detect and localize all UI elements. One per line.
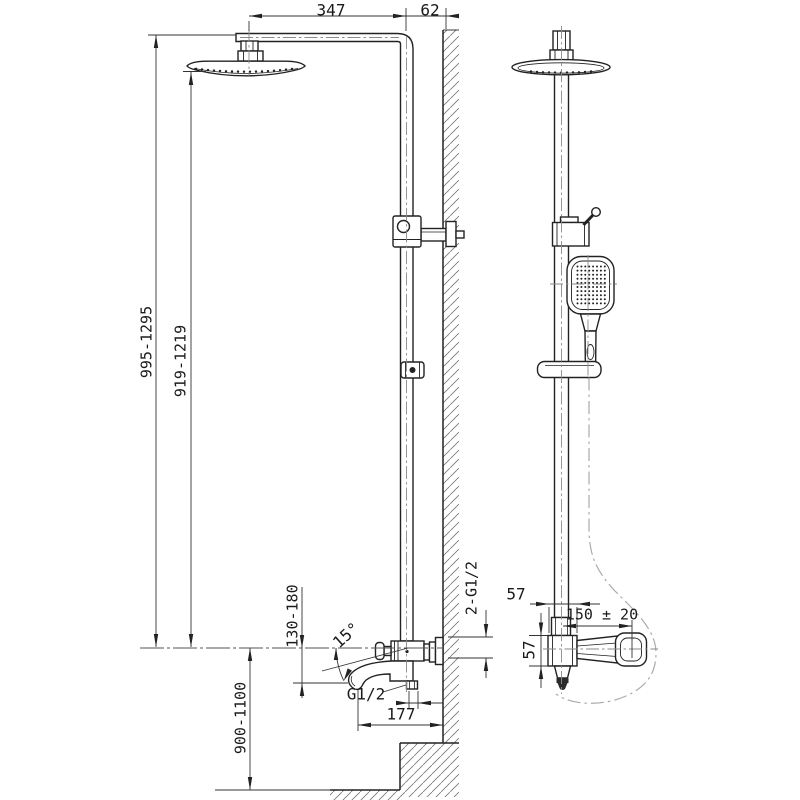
mixer-knob (376, 643, 385, 660)
g12-leader (383, 685, 406, 692)
mixer-handle-shaft (577, 636, 617, 663)
dim-inlet-spacing: 150 ± 20 (566, 605, 638, 623)
rain-head-side (187, 61, 305, 76)
dim-inlet-thread: 2-G1/2 (462, 561, 480, 615)
hand-shower-neck (581, 314, 601, 331)
dim-head-height: 919-1219 (171, 325, 189, 397)
angle-arc (336, 648, 344, 681)
shower-arm-and-riser (236, 34, 413, 642)
dim-body-width: 57 (506, 585, 525, 604)
shower-system-diagram: 347 62 995-1295 919-1219 130-180 900-110… (0, 0, 800, 800)
dim-arm-reach: 347 (317, 1, 346, 20)
front-view (512, 31, 647, 690)
hand-shower-holder (538, 362, 602, 378)
dim-mount-height: 900-1100 (231, 682, 249, 754)
hand-shower (567, 257, 614, 378)
centerlines (140, 26, 658, 694)
dim-spout-reach: 177 (387, 705, 416, 724)
wall-union-flange (436, 638, 444, 665)
dim-spout-thread: G1/2 (347, 685, 386, 704)
side-view (187, 34, 464, 690)
dim-wall-offset: 62 (420, 1, 439, 20)
hose-outlet-cone (555, 666, 571, 678)
hose-outlet-nozzle (407, 681, 418, 689)
dim-overall-height: 995-1295 (137, 306, 155, 378)
slide-clamp (401, 362, 424, 378)
dim-body-height: 57 (520, 640, 539, 659)
dim-spout-angle: 15° (329, 618, 363, 651)
dim-spout-drop: 130-180 (283, 584, 301, 647)
head-connector (238, 41, 263, 61)
technical-drawing-canvas: 347 62 995-1295 919-1219 130-180 900-110… (0, 0, 800, 800)
diverter-lever-knob (592, 208, 601, 217)
rain-head-front (512, 60, 610, 75)
